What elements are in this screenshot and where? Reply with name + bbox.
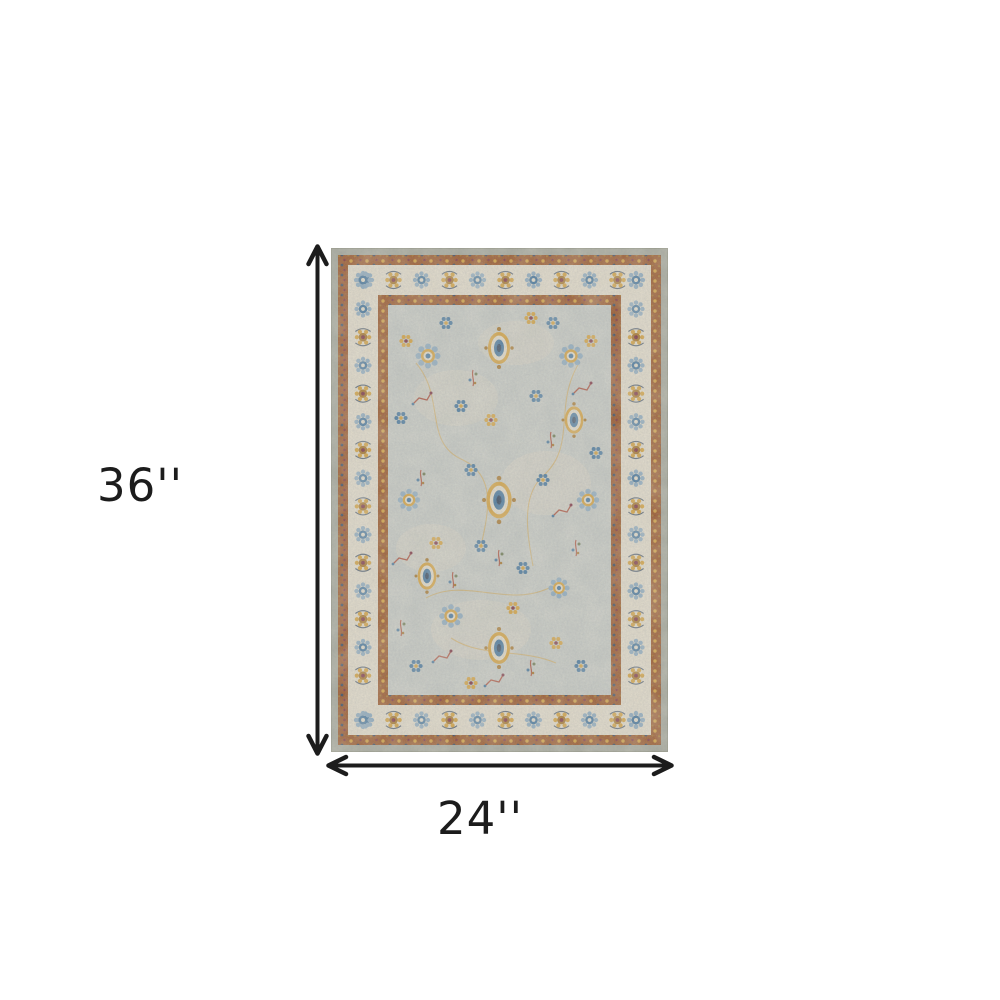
product-dimension-diagram: 36'' 24'' [0, 0, 1000, 1000]
rug-texture [331, 248, 668, 752]
width-dimension-label: 24'' [410, 794, 550, 844]
height-dimension-label: 36'' [70, 461, 210, 511]
width-arrow [329, 757, 672, 774]
height-arrow [309, 247, 327, 754]
rug-image [331, 248, 668, 752]
